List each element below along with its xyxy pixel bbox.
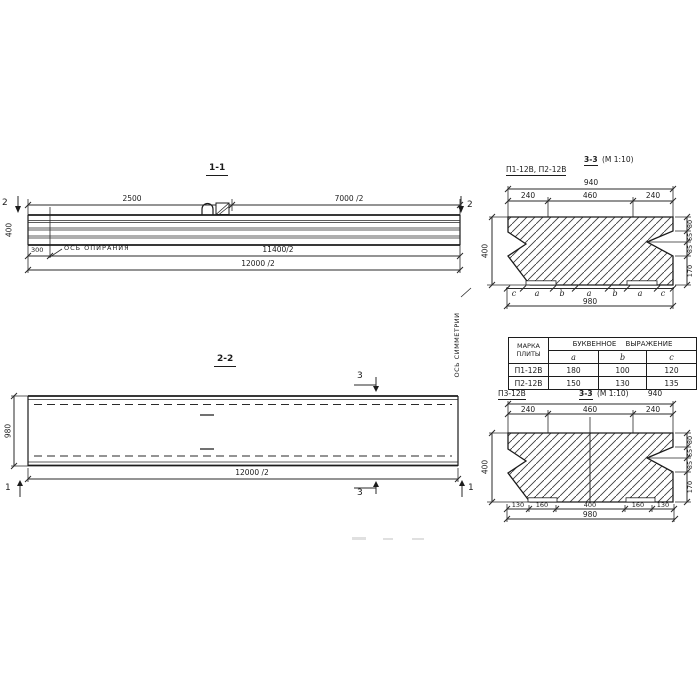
section-3-3-bottom-title: 3-3 (579, 390, 593, 400)
section-3-3-top-scale: (М 1:10) (602, 156, 634, 164)
segment-letter: c (661, 290, 665, 298)
scan-artifact (412, 538, 424, 540)
slab-cross-section (508, 217, 673, 285)
cell-b: 130 (599, 377, 647, 390)
dim-12000-2-top: 12000 /2 (241, 260, 275, 268)
segment-letter: b (559, 290, 564, 298)
section-1-1-title: 1-1 (206, 164, 228, 176)
dim-980: 980 (583, 298, 597, 306)
cut-mark-2-left: 2 (2, 199, 8, 208)
dim-980-left: 980 (4, 424, 12, 438)
dim-65: 65 (687, 448, 694, 456)
dim-940: 940 (584, 179, 598, 187)
cell-a: 180 (549, 364, 599, 377)
dim-400: 400 (481, 460, 489, 474)
dim-80: 80 (687, 220, 694, 228)
dim-2500: 2500 (122, 195, 141, 203)
cell-a: 150 (549, 377, 599, 390)
dim-240-right: 240 (646, 192, 660, 200)
section-1-1-linework (15, 196, 464, 273)
cell-b: 100 (599, 364, 647, 377)
cell-mark: П2-12В (509, 377, 549, 390)
table-header-expression: БУКВЕННОЕ ВЫРАЖЕНИЕ (549, 338, 697, 351)
table-col-a: a (549, 351, 599, 364)
section-3-3-bottom-scale: (М 1:10) (597, 390, 629, 398)
dim-460: 460 (583, 406, 597, 414)
dim-170: 170 (687, 480, 694, 492)
dim-130-left: 130 (512, 502, 524, 509)
dim-980: 980 (583, 511, 597, 519)
cut-mark-3-bottom: 3 (357, 489, 363, 498)
dim-240-left: 240 (521, 406, 535, 414)
section-3-3-top-title: 3-3 (584, 156, 598, 166)
cell-c: 135 (647, 377, 697, 390)
cut-mark-2-right: 2 (467, 201, 473, 210)
segment-letter: b (612, 290, 617, 298)
dim-11400-2: 11400/2 (262, 246, 293, 254)
dim-170: 170 (687, 264, 694, 276)
dim-85: 85 (687, 245, 694, 253)
table-col-c: c (647, 351, 697, 364)
table-row: П1-12В 180 100 120 (509, 364, 697, 377)
symmetry-axis-label: ОСЬ СИММЕТРИИ (454, 312, 461, 377)
dim-940: 940 (648, 390, 662, 398)
table-header-mark-line2: ПЛИТЫ (516, 350, 540, 358)
section-2-2-linework (11, 377, 465, 497)
segment-letter: a (535, 290, 540, 298)
dim-130-right: 130 (657, 502, 669, 509)
dim-65: 65 (687, 232, 694, 240)
dim-400-left: 400 (5, 223, 13, 237)
dim-400: 400 (481, 244, 489, 258)
scan-artifact (383, 538, 393, 540)
cut-mark-1-right: 1 (468, 484, 474, 493)
scan-artifact (352, 537, 366, 540)
drawing-sheet: 1-1 2500 7000 /2 2 2 400 300 ОСЬ ОПИРАНИ… (0, 0, 700, 700)
dim-80: 80 (687, 436, 694, 444)
dim-460: 460 (583, 192, 597, 200)
cut-mark-1-left: 1 (5, 484, 11, 493)
section-2-2-title: 2-2 (214, 355, 236, 367)
dim-240-right: 240 (646, 406, 660, 414)
table-row: П2-12В 150 130 135 (509, 377, 697, 390)
segment-letter: a (638, 290, 643, 298)
dim-12000-2-bottom: 12000 /2 (235, 469, 269, 477)
segment-letter: c (512, 290, 516, 298)
dim-300: 300 (31, 247, 43, 254)
dim-160-left: 160 (536, 502, 548, 509)
cell-mark: П1-12В (509, 364, 549, 377)
support-axis-label: ОСЬ ОПИРАНИЯ (64, 245, 130, 252)
dim-400-bottom: 400 (584, 502, 596, 509)
slab-mark-label: П3-12В (498, 390, 526, 400)
letter-values-table: МАРКА ПЛИТЫ БУКВЕННОЕ ВЫРАЖЕНИЕ a b c П1… (508, 337, 697, 390)
table-col-b: b (599, 351, 647, 364)
dim-160-right: 160 (632, 502, 644, 509)
table-header-mark: МАРКА ПЛИТЫ (509, 338, 549, 364)
symmetry-leader (461, 288, 471, 297)
dim-7000-2: 7000 /2 (335, 195, 364, 203)
cut-mark-3-top: 3 (357, 372, 363, 381)
cell-c: 120 (647, 364, 697, 377)
dim-240-left: 240 (521, 192, 535, 200)
slab-marks-label: П1-12В, П2-12В (506, 166, 566, 176)
dim-85: 85 (687, 461, 694, 469)
